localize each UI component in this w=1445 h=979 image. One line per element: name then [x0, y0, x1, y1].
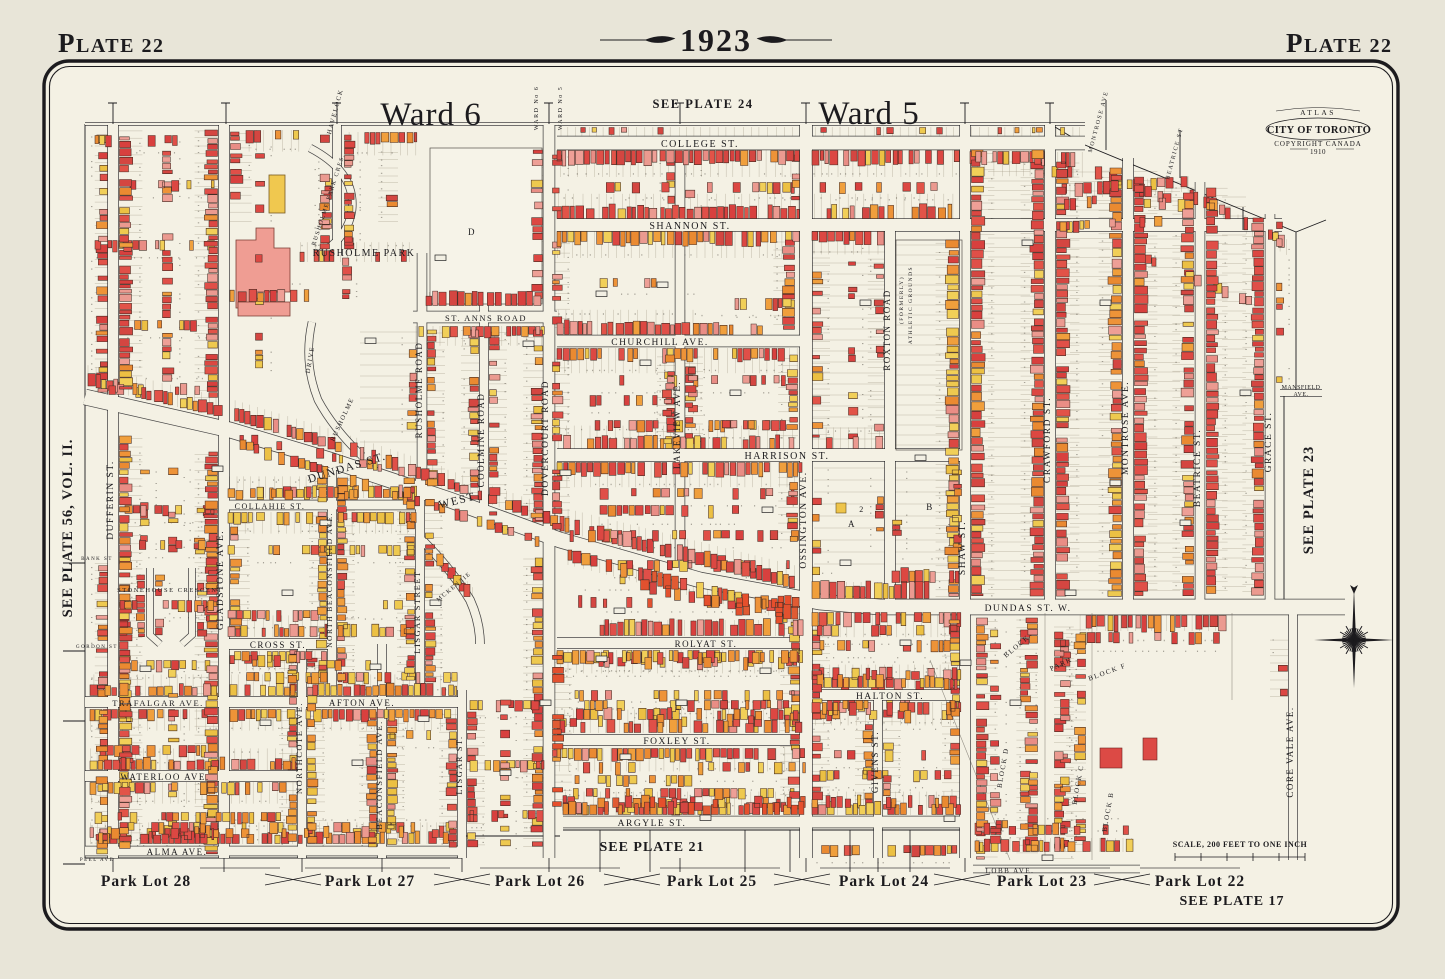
- svg-text:SEE PLATE 21: SEE PLATE 21: [599, 840, 704, 855]
- svg-text:GIVENS ST.: GIVENS ST.: [870, 731, 880, 793]
- svg-text:DUFFERIN ST.: DUFFERIN ST.: [106, 460, 116, 540]
- svg-text:COLLAHIE ST.: COLLAHIE ST.: [235, 502, 306, 511]
- svg-text:FOXLEY ST.: FOXLEY ST.: [643, 737, 710, 747]
- svg-text:B: B: [926, 502, 934, 512]
- svg-text:BEACONSFIELD AVE.: BEACONSFIELD AVE.: [374, 720, 384, 829]
- svg-text:BEATRICE ST.: BEATRICE ST.: [1193, 429, 1203, 508]
- svg-text:SEE PLATE 56, VOL. II.: SEE PLATE 56, VOL. II.: [60, 439, 76, 618]
- svg-text:GRACE ST.: GRACE ST.: [1264, 412, 1274, 473]
- svg-text:Park Lot 25: Park Lot 25: [667, 873, 757, 890]
- svg-text:SHAW ST.: SHAW ST.: [958, 521, 968, 575]
- svg-text:HALTON ST.: HALTON ST.: [856, 692, 924, 702]
- svg-text:AFTON AVE.: AFTON AVE.: [329, 698, 395, 708]
- svg-text:Ward 5: Ward 5: [818, 96, 919, 132]
- svg-text:SEE PLATE 24: SEE PLATE 24: [652, 97, 753, 111]
- svg-text:LISGAR ST.: LISGAR ST.: [454, 735, 464, 794]
- svg-text:AVE.: AVE.: [1293, 392, 1308, 398]
- svg-text:GORDON ST: GORDON ST: [76, 645, 118, 650]
- svg-text:D: D: [468, 227, 476, 237]
- svg-text:BANK ST: BANK ST: [81, 557, 113, 562]
- svg-text:SHANNON ST.: SHANNON ST.: [649, 221, 730, 232]
- svg-text:ALMA AVE.: ALMA AVE.: [147, 847, 208, 857]
- svg-text:Park Lot 22: Park Lot 22: [1155, 873, 1245, 890]
- svg-text:WARD No 5: WARD No 5: [558, 86, 564, 131]
- svg-text:MONTROSE AVE.: MONTROSE AVE.: [1121, 381, 1131, 475]
- svg-text:STONEHOUSE CRESCENT: STONEHOUSE CRESCENT: [117, 587, 223, 594]
- svg-text:1923: 1923: [680, 22, 752, 58]
- svg-text:ARGYLE ST.: ARGYLE ST.: [618, 819, 687, 829]
- svg-text:ATLAS: ATLAS: [1300, 108, 1336, 117]
- svg-text:1910: 1910: [1310, 148, 1326, 156]
- svg-text:NORTHCOTE AVE.: NORTHCOTE AVE.: [294, 702, 304, 794]
- svg-text:SEE PLATE 23: SEE PLATE 23: [1301, 446, 1317, 554]
- svg-text:DUNDAS ST. W.: DUNDAS ST. W.: [985, 604, 1072, 614]
- svg-text:HARRISON ST.: HARRISON ST.: [744, 451, 829, 462]
- svg-text:(FORMERLY): (FORMERLY): [898, 276, 905, 324]
- svg-text:LISGAR STREET: LISGAR STREET: [412, 570, 422, 654]
- svg-text:COPYRIGHT CANADA: COPYRIGHT CANADA: [1274, 140, 1362, 148]
- svg-text:LAKEVIEW AVE.: LAKEVIEW AVE.: [672, 381, 682, 469]
- svg-text:Park Lot 23: Park Lot 23: [997, 873, 1087, 890]
- svg-text:CHURCHILL AVE.: CHURCHILL AVE.: [611, 338, 709, 348]
- svg-text:COLLEGE ST.: COLLEGE ST.: [661, 139, 739, 150]
- svg-text:A: A: [848, 519, 856, 529]
- svg-text:TRAFALGAR AVE.: TRAFALGAR AVE.: [112, 698, 204, 708]
- svg-text:Park Lot 27: Park Lot 27: [325, 873, 415, 890]
- svg-text:WATERLOO AVE.: WATERLOO AVE.: [120, 772, 209, 782]
- svg-text:WARD No 6: WARD No 6: [534, 86, 540, 131]
- svg-text:NORTH BEACONSFIELD AVE.: NORTH BEACONSFIELD AVE.: [325, 512, 334, 648]
- svg-text:ATHLETIC GROUNDS: ATHLETIC GROUNDS: [908, 266, 914, 344]
- svg-text:ROLYAT ST.: ROLYAT ST.: [675, 639, 738, 649]
- svg-text:COOLMINE ROAD: COOLMINE ROAD: [476, 393, 486, 488]
- svg-text:CROSS ST.: CROSS ST.: [250, 640, 306, 650]
- svg-text:Park Lot 28: Park Lot 28: [101, 873, 191, 890]
- svg-text:RUSHOLME PARK: RUSHOLME PARK: [313, 248, 416, 259]
- svg-text:CITY OF TORONTO: CITY OF TORONTO: [1267, 125, 1371, 136]
- svg-text:RUSHOLME ROAD: RUSHOLME ROAD: [414, 342, 424, 439]
- svg-text:Park Lot 26: Park Lot 26: [495, 873, 585, 890]
- svg-text:MANSFIELD: MANSFIELD: [1282, 385, 1321, 391]
- svg-text:SCALE, 200 FEET TO ONE INCH: SCALE, 200 FEET TO ONE INCH: [1173, 840, 1308, 849]
- svg-text:Ward 6: Ward 6: [380, 97, 481, 133]
- svg-text:SEE PLATE 17: SEE PLATE 17: [1179, 894, 1284, 909]
- svg-text:CORE VALE AVE.: CORE VALE AVE.: [1285, 706, 1295, 797]
- svg-text:PEEL AVE: PEEL AVE: [80, 858, 114, 863]
- svg-text:2: 2: [859, 505, 865, 514]
- svg-text:ROXTON ROAD: ROXTON ROAD: [882, 289, 892, 371]
- svg-text:DOVERCOURT ROAD: DOVERCOURT ROAD: [541, 380, 551, 496]
- svg-text:Park Lot 24: Park Lot 24: [839, 873, 929, 890]
- svg-text:ST. ANNS ROAD: ST. ANNS ROAD: [445, 313, 527, 323]
- svg-text:OSSINGTON AVE.: OSSINGTON AVE.: [799, 471, 809, 568]
- svg-text:GLADSTONE AVE.: GLADSTONE AVE.: [216, 530, 226, 630]
- svg-text:CRAWFORD ST.: CRAWFORD ST.: [1043, 397, 1053, 483]
